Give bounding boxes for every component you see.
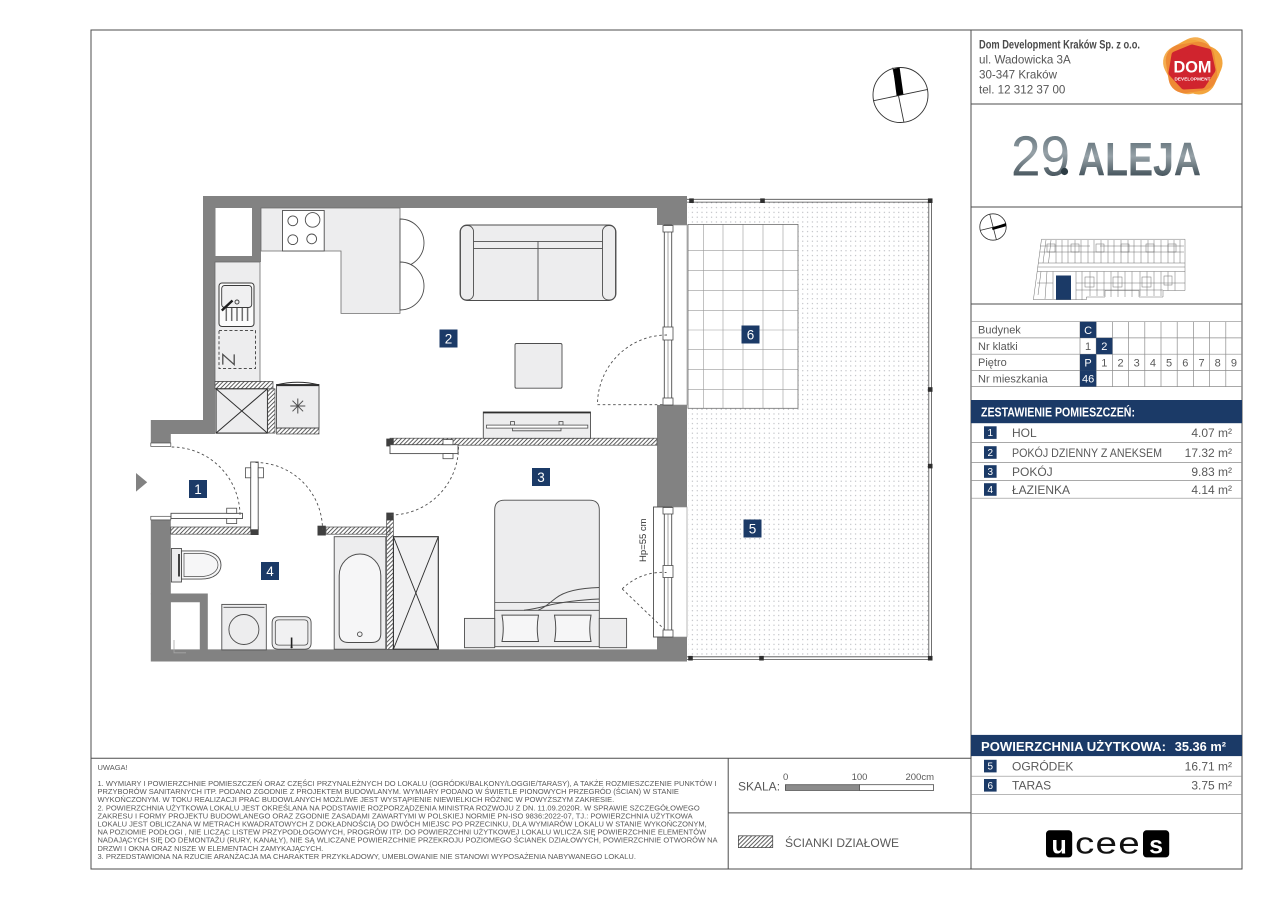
svg-text:3: 3 xyxy=(537,470,545,485)
svg-text:ZESTAWIENIE POMIESZCZEŃ:: ZESTAWIENIE POMIESZCZEŃ: xyxy=(981,405,1135,420)
svg-text:6: 6 xyxy=(988,781,994,792)
svg-text:0: 0 xyxy=(783,772,788,783)
svg-text:5: 5 xyxy=(1166,357,1172,369)
svg-text:6: 6 xyxy=(1182,357,1188,369)
svg-text:2: 2 xyxy=(1101,341,1107,353)
svg-text:100: 100 xyxy=(852,772,868,783)
svg-text:3. PRZEDSTAWIONA NA RZUCIE ARA: 3. PRZEDSTAWIONA NA RZUCIE ARANŻACJA MA … xyxy=(98,852,636,861)
svg-text:3: 3 xyxy=(1134,357,1140,369)
svg-text:35.36 m²: 35.36 m² xyxy=(1175,739,1226,754)
svg-text:Nr klatki: Nr klatki xyxy=(978,341,1018,353)
svg-text:200cm: 200cm xyxy=(905,772,934,783)
svg-text:DEVELOPMENT: DEVELOPMENT xyxy=(1174,77,1210,82)
svg-text:C: C xyxy=(1084,325,1092,337)
svg-text:17.32 m²: 17.32 m² xyxy=(1185,446,1232,460)
svg-text:4: 4 xyxy=(266,564,274,579)
svg-text:Nr mieszkania: Nr mieszkania xyxy=(978,373,1049,385)
svg-text:ALEJA: ALEJA xyxy=(1078,133,1201,186)
svg-text:Piętro: Piętro xyxy=(978,357,1007,369)
svg-text:2: 2 xyxy=(445,332,453,347)
svg-text:Dom Development Kraków Sp. z o: Dom Development Kraków Sp. z o.o. xyxy=(979,39,1140,52)
svg-text:ul. Wadowicka 3A: ul. Wadowicka 3A xyxy=(979,54,1071,67)
svg-text:9: 9 xyxy=(1231,357,1237,369)
svg-text:6: 6 xyxy=(747,328,755,343)
svg-text:5: 5 xyxy=(749,522,757,537)
svg-text:POKÓJ DZIENNY Z ANEKSEM: POKÓJ DZIENNY Z ANEKSEM xyxy=(1012,445,1162,460)
svg-text:4.07 m²: 4.07 m² xyxy=(1191,426,1232,440)
svg-text:1: 1 xyxy=(988,428,994,439)
svg-text:ŚCIANKI DZIAŁOWE: ŚCIANKI DZIAŁOWE xyxy=(785,835,899,850)
svg-text:30-347 Kraków: 30-347 Kraków xyxy=(979,69,1058,82)
svg-text:DOM: DOM xyxy=(1174,59,1212,77)
svg-text:P: P xyxy=(1084,357,1091,369)
svg-text:Hp=55 cm: Hp=55 cm xyxy=(638,518,649,562)
svg-text:46: 46 xyxy=(1082,374,1094,386)
svg-text:4: 4 xyxy=(1150,357,1156,369)
svg-text:4.14 m²: 4.14 m² xyxy=(1191,483,1232,497)
svg-text:16.71 m²: 16.71 m² xyxy=(1185,760,1232,774)
svg-text:5: 5 xyxy=(988,762,994,773)
svg-text:SKALA:: SKALA: xyxy=(738,780,780,794)
svg-text:POKÓJ: POKÓJ xyxy=(1012,464,1053,479)
svg-text:1: 1 xyxy=(1101,357,1107,369)
svg-text:9.83 m²: 9.83 m² xyxy=(1191,465,1232,479)
svg-text:2: 2 xyxy=(988,448,994,459)
svg-text:s: s xyxy=(1149,832,1163,860)
svg-text:u: u xyxy=(1051,832,1066,860)
svg-text:Budynek: Budynek xyxy=(978,325,1021,337)
svg-text:1: 1 xyxy=(194,482,202,497)
svg-text:POWIERZCHNIA UŻYTKOWA:: POWIERZCHNIA UŻYTKOWA: xyxy=(981,739,1166,754)
svg-text:OGRÓDEK: OGRÓDEK xyxy=(1012,759,1073,774)
svg-text:2: 2 xyxy=(1117,357,1123,369)
svg-text:1: 1 xyxy=(1085,341,1091,353)
svg-text:TARAS: TARAS xyxy=(1012,779,1051,793)
svg-text:29: 29 xyxy=(1011,125,1070,189)
svg-text:4: 4 xyxy=(988,485,994,496)
svg-text:7: 7 xyxy=(1198,357,1204,369)
svg-text:cee: cee xyxy=(1075,826,1141,861)
svg-text:UWAGA!: UWAGA! xyxy=(98,763,128,772)
svg-text:8: 8 xyxy=(1215,357,1221,369)
svg-text:3.75 m²: 3.75 m² xyxy=(1191,779,1232,793)
svg-text:3: 3 xyxy=(988,467,994,478)
svg-text:HOL: HOL xyxy=(1012,426,1037,440)
svg-text:ŁAZIENKA: ŁAZIENKA xyxy=(1012,483,1070,497)
svg-text:tel. 12 312 37 00: tel. 12 312 37 00 xyxy=(979,84,1065,97)
